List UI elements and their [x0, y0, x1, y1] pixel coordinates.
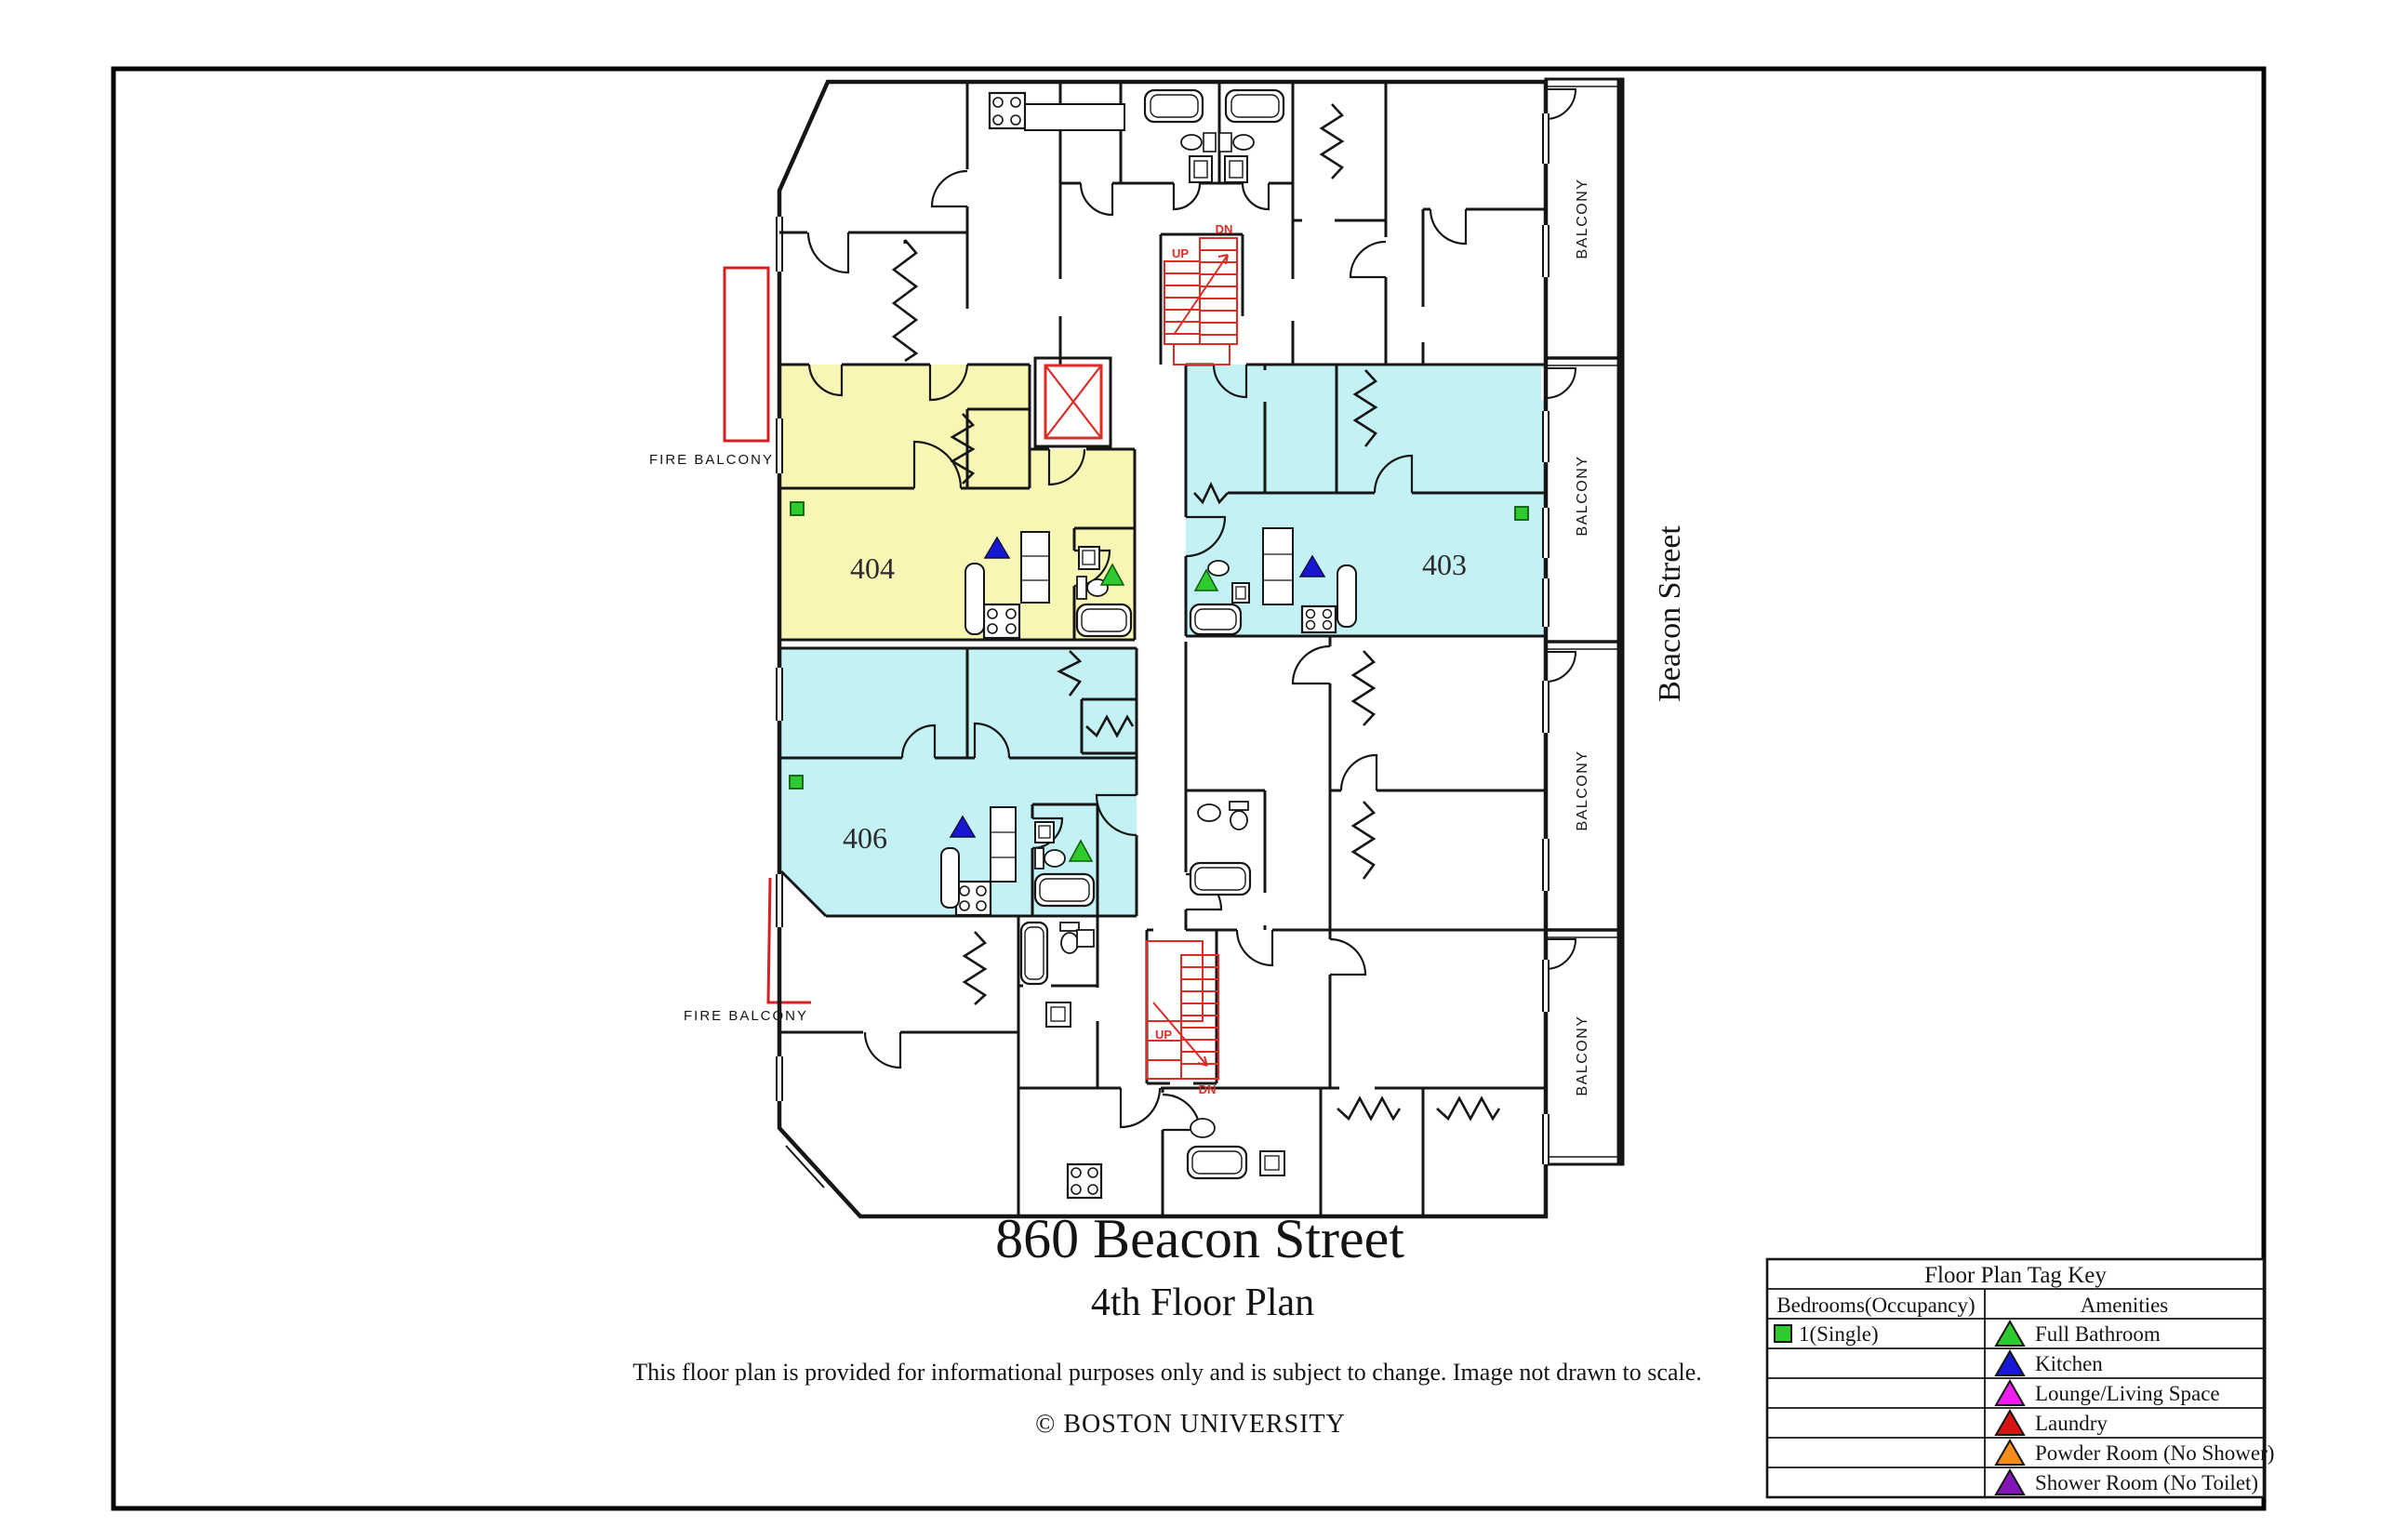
- balcony-label-2: BALCONY: [1575, 456, 1590, 537]
- fire-balcony-label-2: FIRE BALCONY: [684, 1008, 808, 1024]
- legend-table: Floor Plan Tag Key Bedrooms(Occupancy) A…: [1767, 1259, 2274, 1497]
- legend-single-swatch: [1775, 1325, 1791, 1342]
- stairs-down-label-top: DN: [1216, 222, 1233, 236]
- legend-powder-room-label: Powder Room (No Shower): [2035, 1441, 2274, 1465]
- unit-406-number: 406: [843, 821, 887, 855]
- street-label: Beacon Street: [1653, 525, 1687, 702]
- legend-laundry-label: Laundry: [2035, 1412, 2108, 1435]
- legend-col-amenities: Amenities: [2081, 1294, 2169, 1317]
- legend-col-bedrooms: Bedrooms(Occupancy): [1776, 1294, 1975, 1317]
- legend-kitchen-label: Kitchen: [2035, 1352, 2103, 1375]
- legend-full-bathroom-label: Full Bathroom: [2035, 1322, 2161, 1346]
- floor-plan-canvas: BALCONY BALCONY BALCONY BALCONY FIRE BAL…: [0, 0, 2381, 1540]
- disclaimer-text: This floor plan is provided for informat…: [632, 1359, 1702, 1386]
- legend-title: Floor Plan Tag Key: [1924, 1263, 2107, 1288]
- legend-single-label: 1(Single): [1799, 1322, 1879, 1346]
- stairs-down-label-bottom: DN: [1199, 1082, 1217, 1096]
- legend-lounge-label: Lounge/Living Space: [2035, 1382, 2220, 1405]
- plan-subtitle: 4th Floor Plan: [1091, 1281, 1314, 1324]
- stairs-up-label-top: UP: [1172, 246, 1189, 260]
- floor-plan-page: BALCONY BALCONY BALCONY BALCONY FIRE BAL…: [0, 0, 2381, 1540]
- stairs-up-label-bottom: UP: [1155, 1028, 1172, 1042]
- legend-bedroom-row: 1(Single): [1775, 1322, 1879, 1346]
- unit-404-number: 404: [850, 551, 895, 585]
- fire-balcony-label-1: FIRE BALCONY: [649, 452, 774, 468]
- unit-403-number: 403: [1422, 548, 1467, 581]
- plan-title: 860 Beacon Street: [995, 1208, 1404, 1269]
- balcony-label-1: BALCONY: [1575, 179, 1590, 259]
- balcony-label-3: BALCONY: [1575, 750, 1590, 831]
- tag-single-404: [791, 502, 804, 515]
- balcony-label-4: BALCONY: [1575, 1016, 1590, 1096]
- copyright-text: © BOSTON UNIVERSITY: [1035, 1410, 1346, 1439]
- tag-single-403: [1515, 507, 1528, 520]
- legend-shower-room-label: Shower Room (No Toilet): [2035, 1471, 2258, 1494]
- tag-single-406: [790, 776, 803, 789]
